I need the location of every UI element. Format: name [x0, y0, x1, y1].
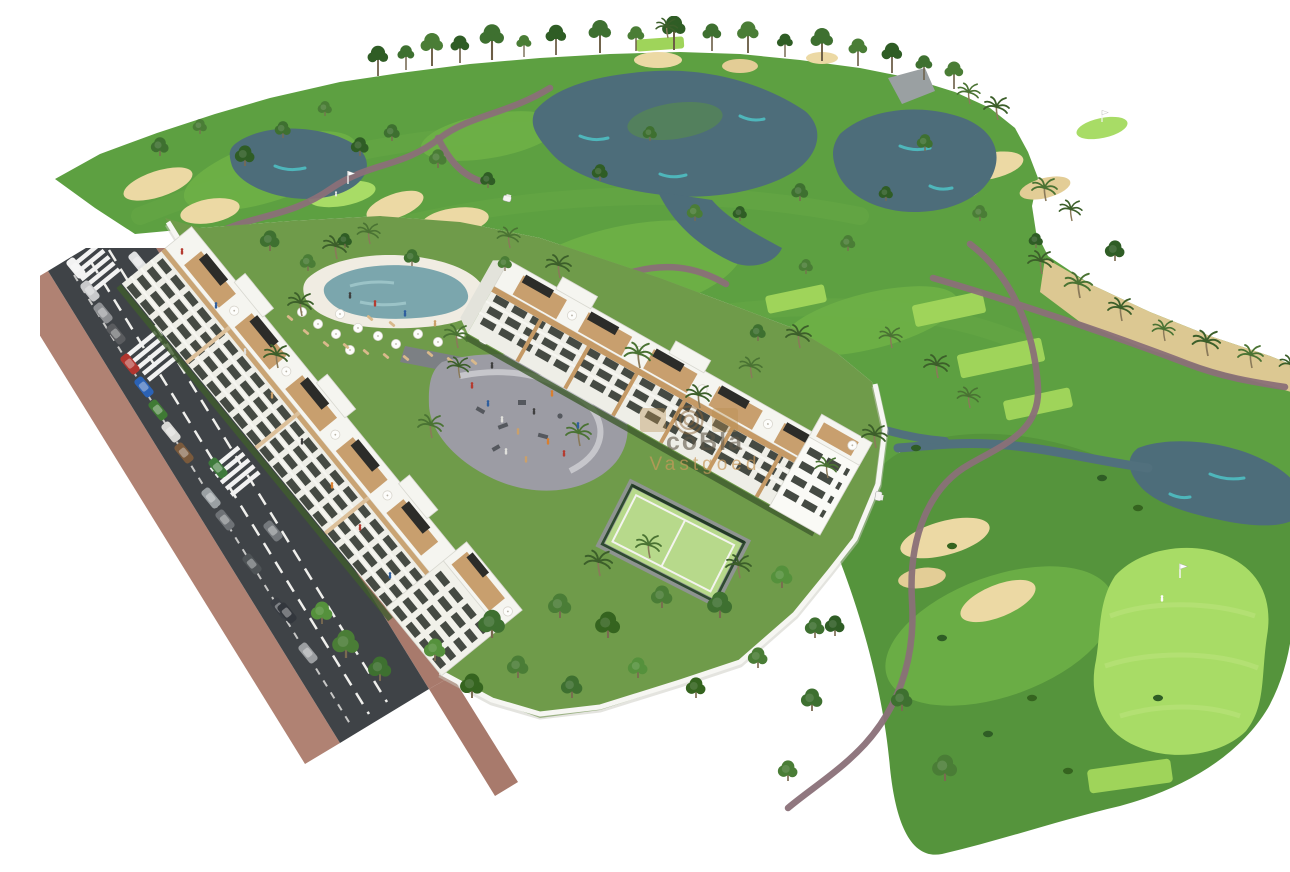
watermark-logo-left-block [640, 408, 666, 432]
architectural-render: coBla Vastgoed [40, 16, 1290, 856]
putting-green-large [1094, 548, 1269, 755]
render-canvas: coBla Vastgoed [40, 16, 1290, 856]
watermark-word: Vastgoed [650, 454, 761, 475]
watermark-brand: coBla [666, 428, 744, 456]
golfer [1161, 595, 1164, 602]
golfer [335, 191, 337, 196]
